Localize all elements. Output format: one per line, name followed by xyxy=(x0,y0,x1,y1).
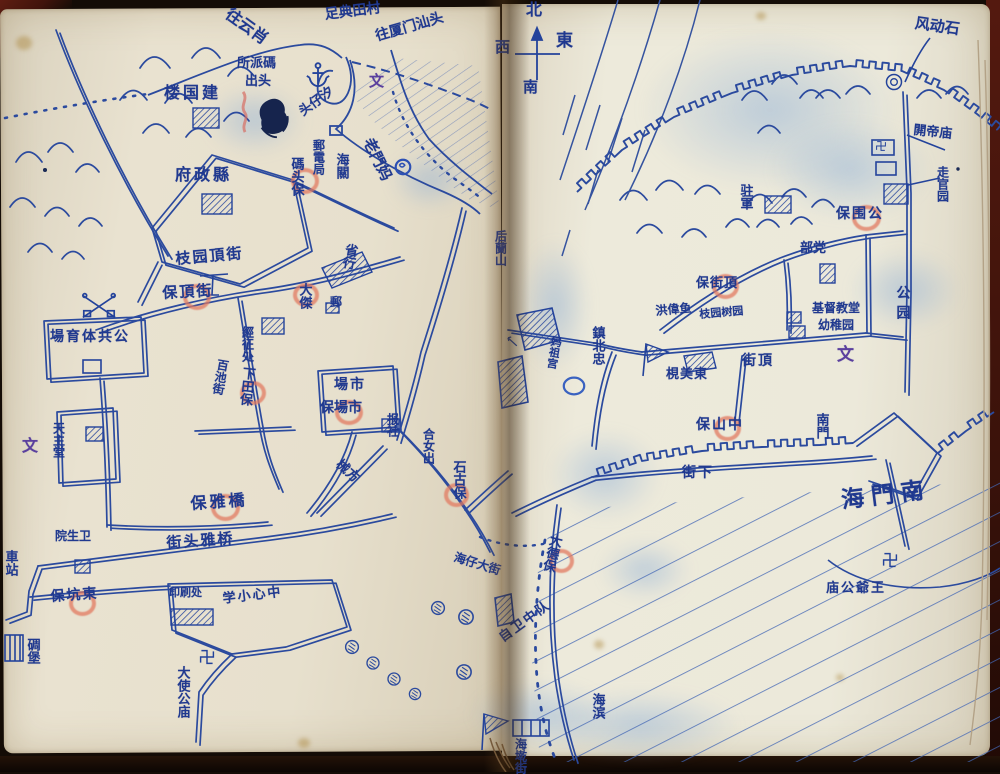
map-label-zhenbei-gate: 鎮北忠 xyxy=(590,326,604,365)
compass-east-label: 東 xyxy=(556,33,573,51)
map-label-baichi-street: 百池街 xyxy=(211,358,230,396)
map-label-guandi-temple: 閞帝庙 xyxy=(913,124,953,142)
map-label-laomen-ma: 老門妈 xyxy=(360,136,394,183)
map-label-haiqian-street: 海墘街 xyxy=(514,738,526,774)
swastika-icon xyxy=(876,141,887,152)
anchor-icon xyxy=(305,61,331,87)
dot-icon xyxy=(956,167,961,172)
map-label-dingjie-bao-east: 保街頂 xyxy=(696,277,738,291)
map-label-market: 場市 xyxy=(334,378,366,393)
map-label-bus-station: 車站 xyxy=(3,550,17,576)
map-label-jianguo-building: 楼国建 xyxy=(164,85,221,102)
map-label-dongkeng-bao: 保坑東 xyxy=(50,587,99,605)
map-label-dongmei-label: 梘美東 xyxy=(666,368,708,382)
map-label-gongyuan-bao: 保围公 xyxy=(836,207,884,222)
map-label-customs-house: 海關 xyxy=(334,153,348,179)
map-label-tax-collection-office: 經征处 xyxy=(241,326,253,362)
blue-circle-icon xyxy=(393,157,413,177)
map-label-houlan-hill: 后蘭山 xyxy=(494,230,506,266)
map-label-lower-street: 街下 xyxy=(682,466,714,481)
map-label-wen-mark-west: 文 xyxy=(22,438,38,455)
map-label-xiefang-street: 械方 xyxy=(333,458,361,485)
map-label-route-xiamen-shantou: 往厦门汕头 xyxy=(374,11,445,44)
map-label-dajie-label: 大傑 xyxy=(297,283,311,309)
rock-icon xyxy=(884,72,904,92)
map-label-zouguanyuan-label: 走官园 xyxy=(936,166,948,202)
map-label-central-primary-school: 学小心中 xyxy=(222,586,283,607)
map-label-south-gate: 南門 xyxy=(814,413,828,439)
map-label-top-street: 街頂 xyxy=(742,354,774,369)
arrow-icon xyxy=(504,333,520,349)
map-label-xizaitou-pier: 头仔汐 xyxy=(297,85,337,119)
map-label-matou-police-line2: 出头 xyxy=(245,75,271,89)
blue-oval-icon xyxy=(561,373,587,399)
red-scribble-icon xyxy=(223,90,267,134)
compass-north-label: 北 xyxy=(526,2,542,19)
swastika-icon xyxy=(199,649,215,665)
map-label-shichang-bao: 保場市 xyxy=(320,401,362,416)
map-label-henuchu-label: 合女出 xyxy=(422,428,434,464)
map-label-wangyegong-temple: 庙公爺王 xyxy=(826,582,886,596)
map-label-post-telegraph-office: 郵電局 xyxy=(312,139,324,175)
compass-south-label: 南 xyxy=(523,80,538,96)
map-label-park-label: 公园 xyxy=(895,285,910,325)
map-label-zhongshan-bao: 保山中 xyxy=(696,418,744,433)
map-label-haizai-main-street: 海仔大街 xyxy=(452,551,502,577)
map-label-wen-mark-east: 文 xyxy=(837,347,854,365)
map-label-provincial-bank: 省行 xyxy=(339,242,357,270)
crossed-poles-icon xyxy=(80,287,118,325)
tree-icon xyxy=(455,663,474,682)
map-label-public-stadium: 場育体共公 xyxy=(50,330,130,345)
map-label-dashigong-temple: 大使公庙 xyxy=(175,666,189,718)
notebook-map-photo: { "palette":{"ink":"#2b4a9e","ink_dark":… xyxy=(0,0,1000,772)
map-label-haibin-label: 海滨 xyxy=(590,693,604,719)
map-label-garrison: 驻軍 xyxy=(738,184,752,210)
tree-icon xyxy=(408,687,423,702)
tree-icon xyxy=(344,639,361,656)
map-label-kindergarten: 幼稚园 xyxy=(818,319,854,331)
map-label-catholic-church: 天主堂 xyxy=(52,422,64,458)
map-label-party-headquarters: 部党 xyxy=(800,242,826,256)
map-label-shigu-bao: 石古保 xyxy=(451,460,465,499)
map-label-hongweiyu-label: 洪偉鱼 xyxy=(655,302,692,318)
map-label-route-yunxiao: 往云肖 xyxy=(222,6,271,48)
map-label-matou-police-line1: 所派碼 xyxy=(237,57,276,71)
compass-west-label: 西 xyxy=(495,40,510,56)
map-label-county-government: 府政縣 xyxy=(175,167,232,184)
map-label-qiaoyatou-street: 街头雅桥 xyxy=(166,531,235,551)
map-label-newspaper-office: 报社 xyxy=(386,413,398,437)
map-label-dingjie-bao-west: 保頂街 xyxy=(162,283,214,301)
map-label-printing-office: 印刷处 xyxy=(169,587,202,598)
map-label-dade-bao: 大德保 xyxy=(540,532,563,573)
swastika-icon xyxy=(882,552,898,568)
tree-icon xyxy=(365,655,381,671)
tree-icon xyxy=(430,600,447,617)
map-label-wen-mark-harbor: 文 xyxy=(369,74,384,90)
map-label-qiaoya-bao: 保雅橋 xyxy=(190,492,248,513)
tree-icon xyxy=(386,671,402,687)
map-label-zhiyuan-top-street: 枝园頂街 xyxy=(175,246,244,267)
map-label-health-clinic: 院生卫 xyxy=(55,530,91,542)
map-label-xiatian-bao: 下田保 xyxy=(237,366,255,406)
dot-icon xyxy=(42,167,48,173)
map-label-route-diantian-village: 足典田村 xyxy=(324,1,381,22)
tree-icon xyxy=(457,608,476,627)
map-label-self-defense-squad: 自卫中队 xyxy=(497,599,553,645)
map-label-post-box-label: 郵 xyxy=(330,296,342,308)
map-label-matou-bao: 碼头保 xyxy=(289,157,303,196)
map-label-fengdong-rock: 风动石 xyxy=(914,16,961,38)
map-label-mazu-temple: 妈祖宫 xyxy=(545,335,562,369)
map-label-christian-church: 基督教堂 xyxy=(812,302,860,314)
map-label-nanmen-sea: 海門南 xyxy=(840,479,932,514)
map-labels-layer: 北西南東往云肖足典田村往厦门汕头头仔汐文所派碼出头楼国建府政縣老門妈郵電局碼头保… xyxy=(0,0,1000,772)
map-label-orchard-label: 枝园树园 xyxy=(699,305,744,320)
map-label-pillbox: 碉堡 xyxy=(25,638,39,664)
